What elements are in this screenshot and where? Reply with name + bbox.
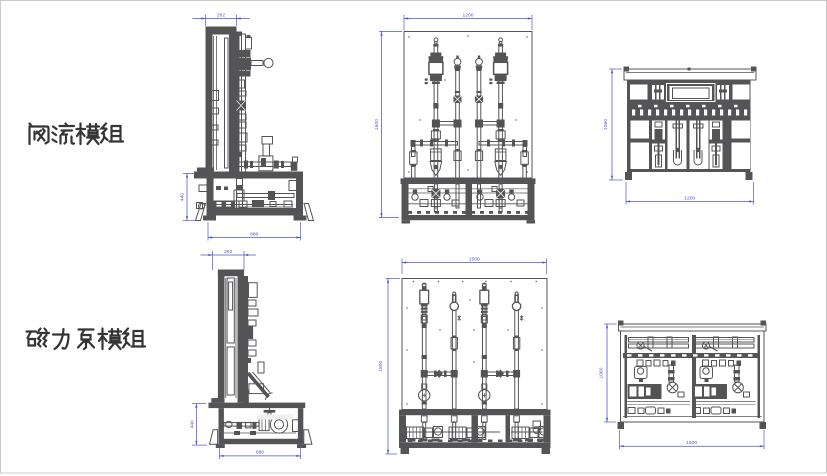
- svg-text:1500: 1500: [469, 257, 480, 263]
- svg-text:1500: 1500: [686, 440, 697, 446]
- svg-text:440: 440: [180, 193, 186, 201]
- svg-text:880: 880: [250, 232, 258, 238]
- svg-text:880: 880: [256, 450, 264, 456]
- svg-text:1060: 1060: [599, 367, 605, 378]
- svg-text:1060: 1060: [603, 119, 609, 130]
- svg-text:1800: 1800: [378, 361, 384, 372]
- svg-text:440: 440: [190, 420, 196, 428]
- svg-text:1200: 1200: [684, 196, 695, 202]
- svg-text:262: 262: [224, 249, 232, 255]
- svg-text:1200: 1200: [463, 13, 474, 19]
- svg-text:1600: 1600: [374, 119, 380, 130]
- svg-text:262: 262: [217, 13, 225, 19]
